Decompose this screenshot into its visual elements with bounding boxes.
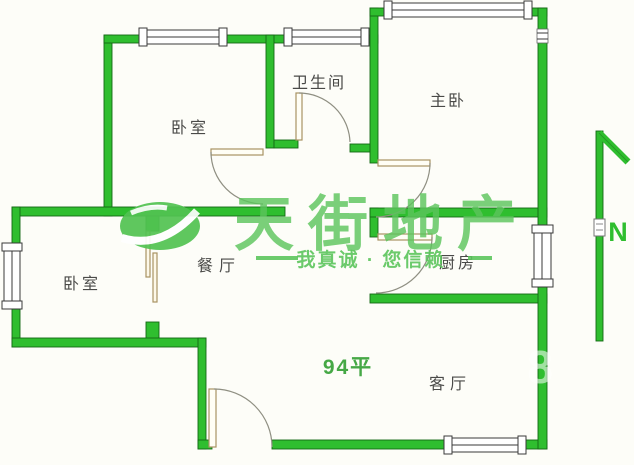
floor-plan-drawing: 卧室 卫生间 主卧 卧室 餐厅 厨房 客厅 94平 N 天 街 地 产 <box>0 0 634 465</box>
room-label-bedroom-top: 卧室 <box>171 119 209 137</box>
window-icon <box>444 436 526 454</box>
brand-char: 街 <box>307 191 368 258</box>
door-icon <box>296 93 350 142</box>
flue-marker <box>537 29 548 43</box>
wall-segment <box>104 35 112 216</box>
wall-segment <box>146 322 159 340</box>
tagline-dash-right <box>468 256 492 260</box>
room-label-living: 客厅 <box>429 375 471 393</box>
wall-segment <box>12 338 206 347</box>
window-icon <box>532 225 553 287</box>
window-icon <box>2 243 22 309</box>
window-icon <box>284 28 369 46</box>
tagline-dash-left <box>256 256 298 260</box>
wall-segment <box>272 440 450 449</box>
brand-char: 天 <box>234 191 294 258</box>
area-label: 94平 <box>323 356 373 379</box>
room-label-bedroom-left: 卧室 <box>63 275 101 293</box>
floor-plan-canvas: 卧室 卫生间 主卧 卧室 餐厅 厨房 客厅 94平 N 天 街 地 产 <box>0 0 634 465</box>
room-label-master-bedroom: 主卧 <box>430 92 466 110</box>
north-label: N <box>608 217 628 247</box>
wall-segment <box>266 35 274 148</box>
tagline-text: 我真诚 · 您信赖 <box>297 248 446 271</box>
brand-logo-ellipse <box>120 202 200 250</box>
brand-char: 地 <box>383 191 443 258</box>
faint-digit-watermark: 8 <box>527 341 553 393</box>
wall-segment <box>274 140 298 148</box>
window-icon <box>384 1 532 19</box>
brand-char: 产 <box>457 191 517 258</box>
wall-segment <box>370 294 547 303</box>
wall-segment <box>198 338 206 449</box>
wall-segment <box>370 8 378 163</box>
room-label-dining: 餐厅 <box>197 257 241 275</box>
room-label-bathroom: 卫生间 <box>292 74 346 92</box>
north-arrow-icon: N <box>594 131 628 341</box>
window-icon <box>139 28 227 46</box>
wall-segment <box>350 144 370 152</box>
door-icon <box>209 389 272 447</box>
wall-segment <box>225 35 288 43</box>
